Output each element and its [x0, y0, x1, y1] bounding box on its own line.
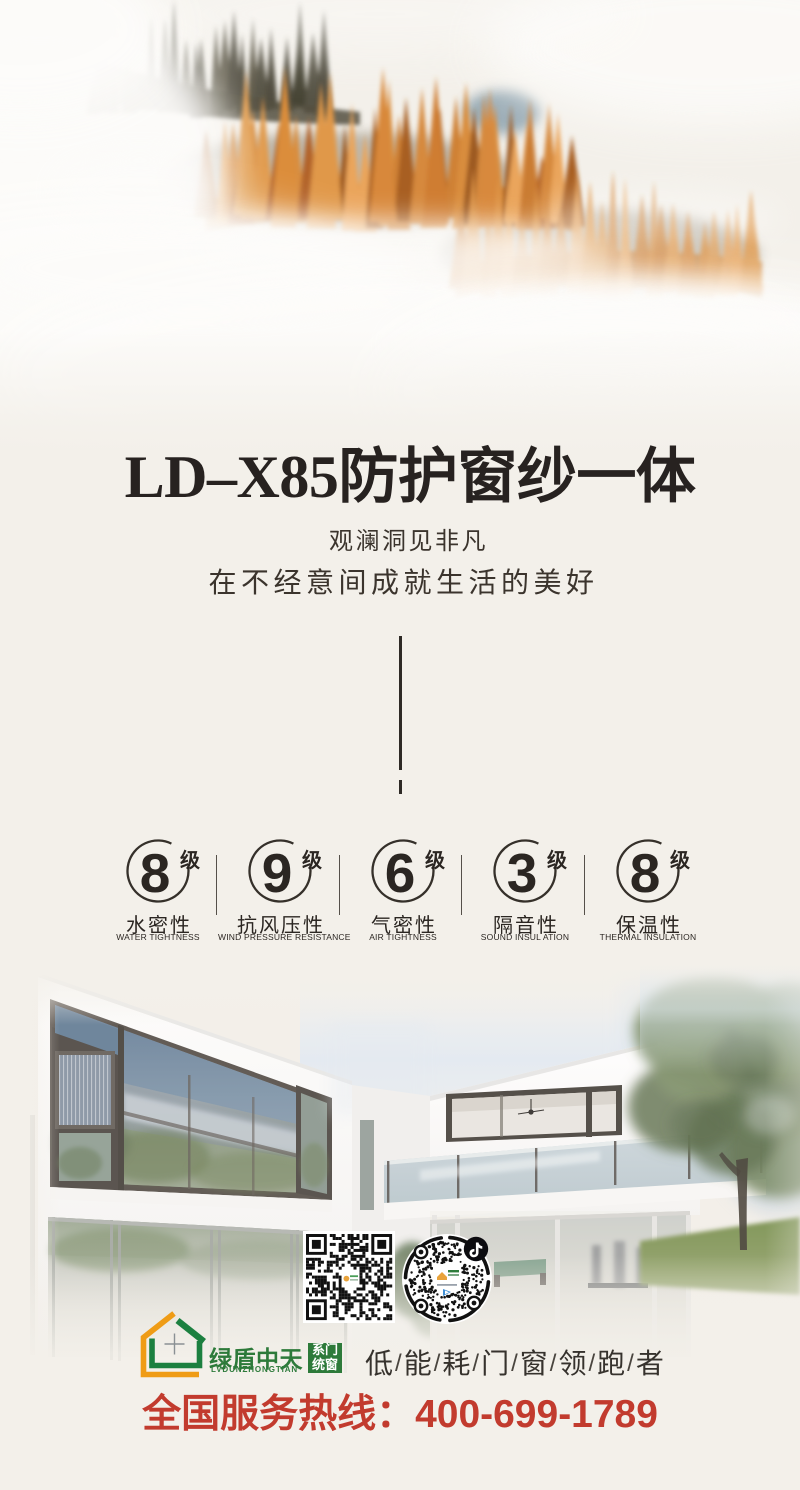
- svg-text:6: 6: [385, 842, 416, 904]
- svg-text:9: 9: [262, 842, 293, 904]
- svg-text:3: 3: [507, 842, 538, 904]
- svg-text:8: 8: [630, 842, 661, 904]
- svg-text:级: 级: [180, 848, 200, 872]
- svg-text:级: 级: [302, 848, 322, 872]
- svg-text:级: 级: [425, 848, 445, 872]
- svg-text:级: 级: [547, 848, 567, 872]
- svg-text:8: 8: [140, 842, 171, 904]
- svg-text:级: 级: [670, 848, 690, 872]
